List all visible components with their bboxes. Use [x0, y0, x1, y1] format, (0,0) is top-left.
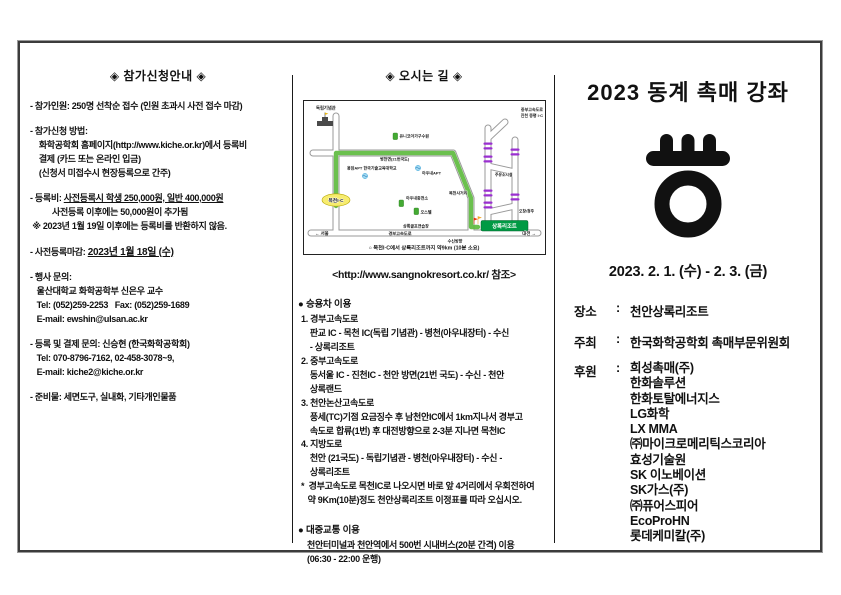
sponsor-item: LX MMA: [630, 422, 765, 437]
sponsors-list: 희성촉매(주) 한화솔루션 한화토탈에너지스 LG화학 LX MMA ㈜마이크로…: [630, 361, 765, 545]
svg-text:← 서울: ← 서울: [315, 230, 329, 237]
deadline-date: 2023년 1월 18일 (수): [88, 247, 174, 258]
fee-prefix: - 등록비:: [30, 193, 64, 203]
svg-text:용암APT 한국기술교육대학교: 용암APT 한국기술교육대학교: [347, 165, 397, 171]
fee-rest: 사전등록 이후에는 50,000원이 추가됨 ※ 2023년 1월 19일 이후…: [30, 207, 227, 231]
event-title: 2023 동계 촉매 강좌: [560, 75, 816, 107]
svg-text:수신방향: 수신방향: [447, 238, 462, 244]
svg-text:상록골프연습장: 상록골프연습장: [403, 223, 429, 229]
car-directions: ● 승용차 이용 1. 경부고속도로 판교 IC - 목천 IC(독립 기념관)…: [298, 296, 550, 508]
registration-section-title: ◈ 참가신청안내 ◈: [30, 67, 286, 84]
sponsor-item: LG화학: [630, 407, 765, 422]
method-paragraph: - 참가신청 방법: 화학공학회 홈페이지(http://www.kiche.o…: [30, 125, 286, 181]
transit-directions-header: ● 대중교통 이용: [298, 522, 550, 536]
car-directions-text: 1. 경부고속도로 판교 IC - 목천 IC(독립 기념관) - 병천(아우내…: [301, 313, 550, 508]
sponsor-item: EcoProHN: [630, 514, 765, 529]
venue-colon: :: [616, 301, 630, 320]
svg-text:병천면(21번국도): 병천면(21번국도): [380, 156, 410, 162]
sponsor-item: 한화솔루션: [630, 376, 765, 391]
capacity-paragraph: - 참가인원: 250명 선착순 접수 (인원 초과시 사전 접수 마감): [30, 100, 286, 114]
location-map: 목천I·C 상록리조트 독립기념관 유니코아가구수원 병천면(21번국도) 용암…: [303, 100, 546, 260]
sponsor-colon: :: [616, 361, 630, 545]
svg-text:목천I·C: 목천I·C: [328, 197, 344, 204]
transit-directions: ● 대중교통 이용 천안터미널과 천안역에서 500번 시내버스(20분 간격)…: [298, 522, 550, 567]
host-value: 한국화학공학회 촉매부문위원회: [630, 332, 790, 351]
page-border: ◈ 참가신청안내 ◈ - 참가인원: 250명 선착순 접수 (인원 초과시 사…: [18, 41, 822, 552]
svg-text:중부고속도로: 중부고속도로: [520, 106, 542, 112]
supplies-paragraph: - 준비물: 세면도구, 실내화, 기타개인물품: [30, 391, 286, 405]
sponsor-item: ㈜마이크로메리틱스코리아: [630, 437, 765, 452]
host-row: 주최 : 한국화학공학회 촉매부문위원회: [574, 332, 816, 351]
svg-text:진천 증평 I·C: 진천 증평 I·C: [520, 112, 542, 118]
sponsor-item: 희성촉매(주): [630, 361, 765, 376]
svg-text:유니코아가구수원: 유니코아가구수원: [399, 133, 429, 139]
resort-url-note: <http://www.sangnokresort.co.kr/ 참조>: [298, 267, 550, 282]
svg-text:오창/청주: 오창/청주: [519, 209, 535, 214]
deadline-paragraph: - 사전등록마감: 2023년 1월 18일 (수): [30, 245, 286, 261]
sponsor-item: 효성기술원: [630, 453, 765, 468]
map-caption: ○ 목천I·C에서 상록리조트까지 약9km (10분 소요): [368, 244, 479, 252]
sponsor-label: 후원: [574, 361, 616, 545]
sponsor-item: ㈜퓨어스피어: [630, 499, 765, 514]
svg-text:아우내충전소: 아우내충전소: [406, 195, 428, 201]
host-colon: :: [616, 332, 630, 351]
svg-text:대전 →: 대전 →: [522, 230, 536, 237]
svg-text:목천사거리: 목천사거리: [449, 190, 468, 196]
sponsor-item: 한화토탈에너지스: [630, 392, 765, 407]
event-contact-paragraph: - 행사 문의: 울산대학교 화학공학부 신은우 교수 Tel: (052)25…: [30, 271, 286, 327]
event-column: 2023 동계 촉매 강좌 2023. 2. 1. (수) - 2. 3. (금…: [560, 61, 816, 557]
svg-text:독립기념관: 독립기념관: [316, 105, 336, 112]
sponsor-item: 롯데케미칼(주): [630, 529, 765, 544]
svg-text:주유소시설: 주유소시설: [495, 172, 513, 177]
svg-text:경부고속도로: 경부고속도로: [388, 230, 411, 237]
directions-column: ◈ 오시는 길 ◈: [298, 61, 550, 578]
car-directions-header: ● 승용차 이용: [298, 296, 550, 310]
venue-value: 천안상록리조트: [630, 301, 708, 320]
sponsor-row: 후원 : 희성촉매(주) 한화솔루션 한화토탈에너지스 LG화학 LX MMA …: [574, 361, 816, 545]
map-canvas: 목천I·C 상록리조트 독립기념관 유니코아가구수원 병천면(21번국도) 용암…: [303, 100, 546, 255]
event-dates: 2023. 2. 1. (수) - 2. 3. (금): [560, 260, 816, 281]
column-divider-left: [292, 75, 293, 543]
column-divider-right: [554, 75, 555, 543]
fee-paragraph: - 등록비: 사전등록시 학생 250,000원, 일반 400,000원 사전…: [30, 192, 286, 234]
host-label: 주최: [574, 332, 616, 351]
registration-contact-paragraph: - 등록 및 결제 문의: 신승현 (한국화학공학회) Tel: 070-879…: [30, 338, 286, 380]
sponsor-item: SK 이노베이션: [630, 468, 765, 483]
fee-underlined: 사전등록시 학생 250,000원, 일반 400,000원: [64, 193, 224, 203]
mokcheon-ic-badge: 목천I·C: [322, 194, 350, 206]
catalysis-logo: [636, 121, 740, 244]
svg-text:상록리조트: 상록리조트: [492, 222, 517, 230]
venue-label: 장소: [574, 301, 616, 320]
catalysis-logo-icon: [636, 121, 740, 239]
venue-row: 장소 : 천안상록리조트: [574, 301, 816, 320]
sponsor-item: SK가스(주): [630, 483, 765, 498]
svg-text:아우내APT: 아우내APT: [422, 170, 442, 176]
event-info: 장소 : 천안상록리조트 주최 : 한국화학공학회 촉매부문위원회 후원 : 희…: [574, 301, 816, 545]
svg-text:오스텔: 오스텔: [420, 209, 431, 215]
registration-column: ◈ 참가신청안내 ◈ - 참가인원: 250명 선착순 접수 (인원 초과시 사…: [30, 61, 286, 416]
deadline-prefix: - 사전등록마감:: [30, 247, 88, 257]
transit-directions-text: 천안터미널과 천안역에서 500번 시내버스(20분 간격) 이용 (06:30…: [307, 539, 550, 567]
directions-section-title: ◈ 오시는 길 ◈: [298, 67, 550, 84]
